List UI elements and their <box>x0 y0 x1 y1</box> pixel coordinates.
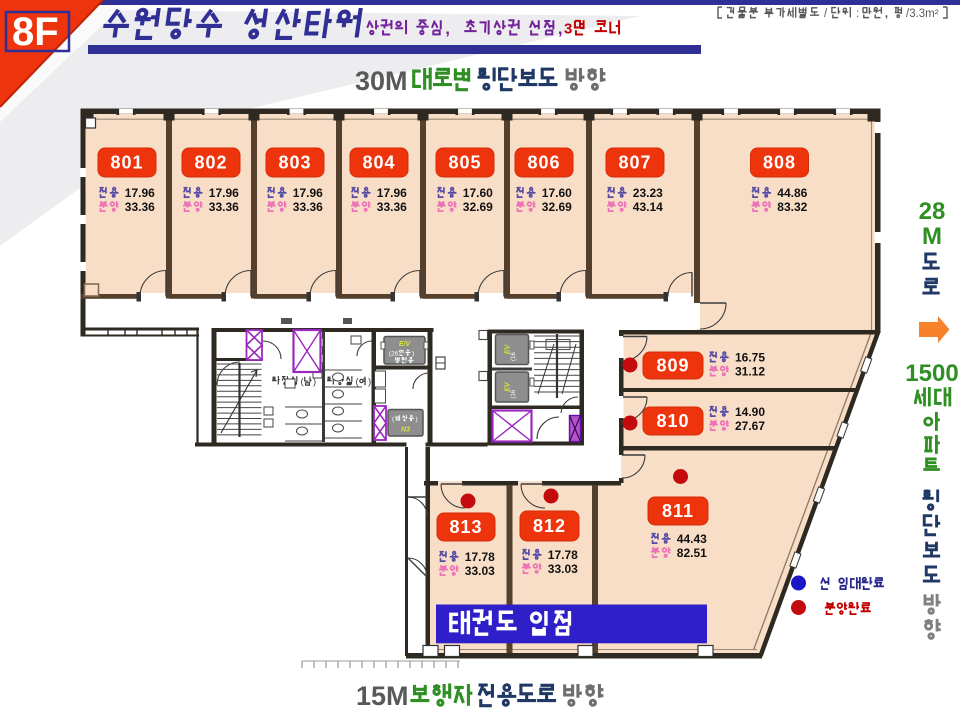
svg-text:32.69: 32.69 <box>542 200 572 214</box>
svg-text:33.03: 33.03 <box>465 564 495 578</box>
svg-text:17.78: 17.78 <box>548 548 578 562</box>
svg-text:/3.3m²: /3.3m² <box>906 8 939 20</box>
svg-text:17.96: 17.96 <box>209 186 239 200</box>
svg-text:33.36: 33.36 <box>125 200 155 214</box>
svg-text:33.36: 33.36 <box>377 200 407 214</box>
svg-text:28: 28 <box>919 198 946 225</box>
svg-text:30M: 30M <box>355 66 408 96</box>
svg-text:15M: 15M <box>356 681 409 711</box>
svg-text:808: 808 <box>763 153 796 173</box>
svg-text:16.75: 16.75 <box>735 351 765 365</box>
svg-text:83.32: 83.32 <box>777 200 807 214</box>
svg-text:810: 810 <box>656 411 689 431</box>
svg-text:N3: N3 <box>401 427 410 434</box>
svg-text:): ) <box>412 351 414 358</box>
svg-text:811: 811 <box>662 501 694 521</box>
svg-text:27.67: 27.67 <box>735 419 765 433</box>
svg-text:17.96: 17.96 <box>293 186 323 200</box>
svg-text:): ) <box>368 377 371 388</box>
svg-text:812: 812 <box>533 516 566 536</box>
svg-text:44.43: 44.43 <box>677 532 707 546</box>
svg-text:33.36: 33.36 <box>293 200 323 214</box>
svg-text:806: 806 <box>527 153 560 173</box>
svg-text:14.90: 14.90 <box>735 405 765 419</box>
svg-text:82.51: 82.51 <box>677 546 707 560</box>
svg-text:32.69: 32.69 <box>463 200 493 214</box>
svg-text:813: 813 <box>449 517 482 537</box>
svg-text::: : <box>856 8 859 20</box>
svg-text:804: 804 <box>362 153 395 173</box>
svg-text:M: M <box>922 223 942 250</box>
svg-text:805: 805 <box>448 153 481 173</box>
svg-text:17.60: 17.60 <box>463 186 493 200</box>
svg-text:807: 807 <box>618 153 651 173</box>
svg-text:43.14: 43.14 <box>633 200 663 214</box>
svg-text:1500: 1500 <box>905 360 958 387</box>
svg-text:(26: (26 <box>389 351 399 358</box>
svg-text:(16: (16 <box>511 352 517 361</box>
svg-text:,: , <box>558 19 563 38</box>
svg-text:17.60: 17.60 <box>542 186 572 200</box>
svg-text:31.12: 31.12 <box>735 365 765 379</box>
svg-text:17.96: 17.96 <box>125 186 155 200</box>
svg-text:803: 803 <box>278 153 311 173</box>
svg-text:,: , <box>445 19 450 38</box>
svg-text:8F: 8F <box>12 10 59 54</box>
svg-text:33.36: 33.36 <box>209 200 239 214</box>
svg-text:3: 3 <box>564 21 572 38</box>
svg-text:17.96: 17.96 <box>377 186 407 200</box>
svg-text:,: , <box>885 6 888 20</box>
svg-text:17.78: 17.78 <box>465 550 495 564</box>
svg-text:801: 801 <box>110 153 143 173</box>
svg-text:23.23: 23.23 <box>633 186 663 200</box>
svg-text:): ) <box>416 416 418 423</box>
svg-text:802: 802 <box>194 153 227 173</box>
svg-text:809: 809 <box>656 356 689 376</box>
svg-text:(16: (16 <box>511 389 517 398</box>
svg-text:33.03: 33.03 <box>548 562 578 576</box>
svg-text:E/V: E/V <box>399 341 412 348</box>
svg-text:44.86: 44.86 <box>777 186 807 200</box>
